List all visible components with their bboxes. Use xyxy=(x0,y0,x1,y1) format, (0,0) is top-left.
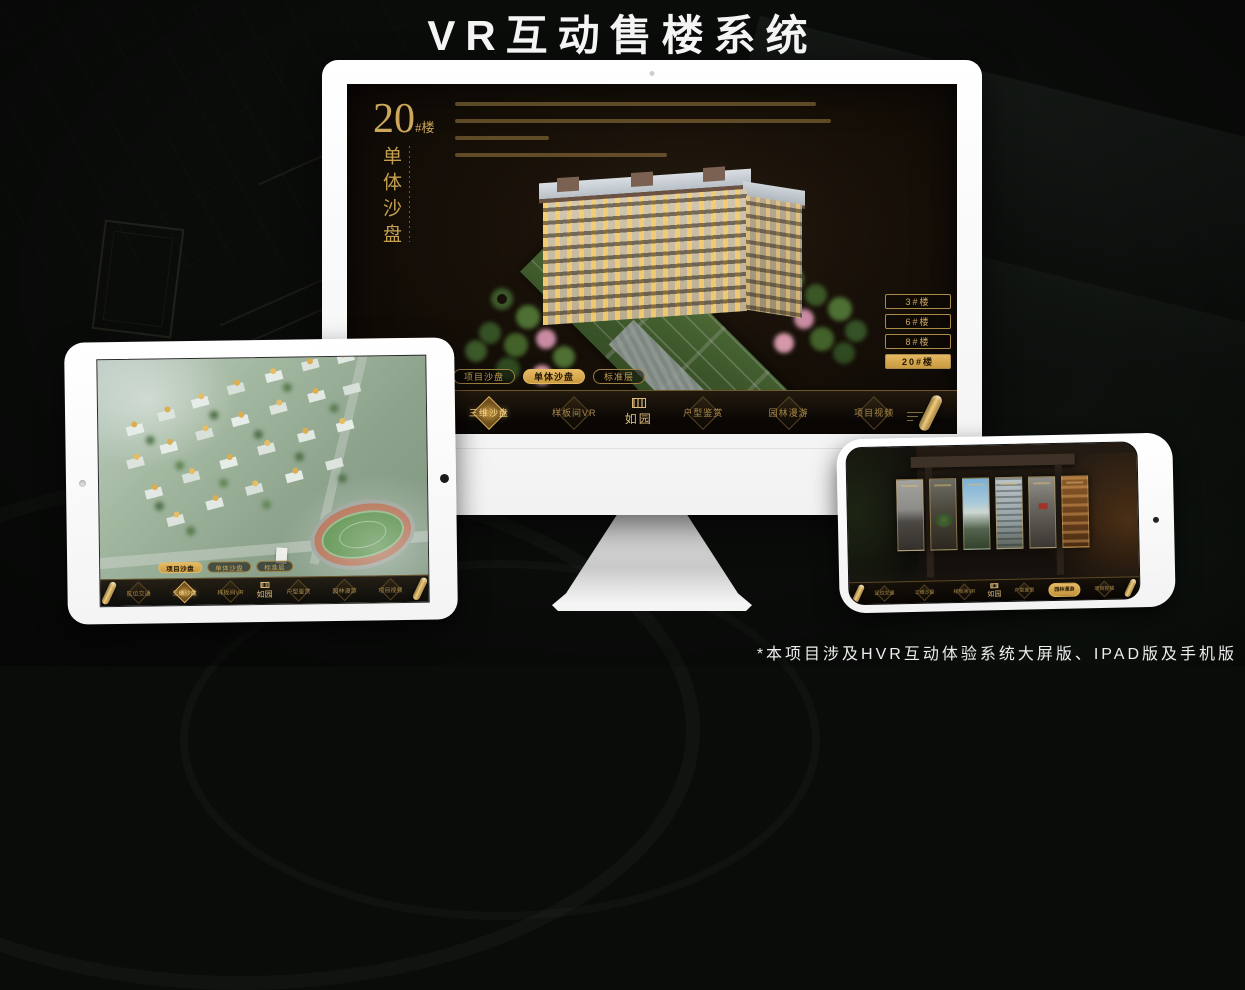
gallery-panel[interactable] xyxy=(1028,476,1057,549)
nav-item-garden-tour[interactable]: 园林漫游 xyxy=(1047,581,1081,598)
seal-icon xyxy=(632,398,646,408)
building-side-facade xyxy=(746,196,802,319)
nav-item-showroom-vr[interactable]: 样板间VR xyxy=(539,396,609,430)
scroll-handle-icon[interactable] xyxy=(1127,578,1133,597)
nav-item-location[interactable]: 区位交通 xyxy=(118,581,158,604)
tablet-device: 项目沙盘 单体沙盘 标准层 区位交通 三维沙盘 样板间VR 如园 户型鉴赏 园林… xyxy=(64,337,458,624)
gallery-panel[interactable] xyxy=(995,477,1024,550)
roof-dormer xyxy=(557,177,579,193)
phone-screen: 区位交通 三维沙盘 样板间VR 如园 户型鉴赏 园林漫游 项目视频 xyxy=(845,441,1140,605)
floor-button-8[interactable]: 8#楼 xyxy=(885,334,951,349)
description-line xyxy=(455,119,831,123)
tab-project-sandtable[interactable]: 项目沙盘 xyxy=(158,562,202,574)
tablet-nav-bar: 区位交通 三维沙盘 样板间VR 如园 户型鉴赏 园林漫游 项目视频 xyxy=(100,575,428,607)
nav-item-video[interactable]: 项目视频 xyxy=(1087,580,1121,597)
phone-camera-icon xyxy=(1153,517,1159,523)
nav-item-garden-tour[interactable]: 园林漫游 xyxy=(754,396,824,430)
footnote-text: *本项目涉及HVR互动体验系统大屏版、IPAD版及手机版 xyxy=(757,640,1237,664)
scene-gallery xyxy=(896,475,1089,551)
nav-item-sandtable[interactable]: 三维沙盘 xyxy=(164,581,204,604)
building-front-facade xyxy=(543,189,747,325)
phone-device: 区位交通 三维沙盘 样板间VR 如园 户型鉴赏 园林漫游 项目视频 xyxy=(836,433,1176,614)
brand-logo: 如园 xyxy=(625,398,653,427)
nav-item-sandtable[interactable]: 三维沙盘 xyxy=(454,396,524,430)
nav-item-showroom-vr[interactable]: 样板间VR xyxy=(210,580,250,603)
brand-logo-text: 如园 xyxy=(625,410,653,427)
nav-item-video[interactable]: 项目视频 xyxy=(839,396,909,430)
description-line xyxy=(455,136,549,140)
nav-item-showroom-vr[interactable]: 样板间VR xyxy=(947,583,981,600)
tablet-camera-icon xyxy=(79,480,86,487)
phone-nav-bar: 区位交通 三维沙盘 样板间VR 如园 户型鉴赏 园林漫游 项目视频 xyxy=(849,576,1139,604)
scroll-bar xyxy=(412,576,429,601)
description-paragraph xyxy=(455,102,847,170)
nav-item-floorplans[interactable]: 户型鉴赏 xyxy=(1007,582,1041,599)
floor-button-20[interactable]: 20#楼 xyxy=(885,354,951,369)
headline-vertical-text: 单体沙盘 xyxy=(377,146,404,250)
scroll-handle-icon[interactable] xyxy=(416,577,423,601)
floor-button-group: 3#楼 6#楼 8#楼 20#楼 xyxy=(885,294,951,369)
seal-icon xyxy=(260,582,269,588)
tab-single-sandtable[interactable]: 单体沙盘 xyxy=(523,369,585,384)
floor-button-6[interactable]: 6#楼 xyxy=(885,314,951,329)
tablet-screen: 项目沙盘 单体沙盘 标准层 区位交通 三维沙盘 样板间VR 如园 户型鉴赏 园林… xyxy=(96,355,429,608)
tab-single-sandtable[interactable]: 单体沙盘 xyxy=(207,561,251,573)
headline-rule xyxy=(409,146,410,242)
subtab-group: 项目沙盘 单体沙盘 标准层 xyxy=(453,369,645,384)
building-number: 20 xyxy=(373,96,415,142)
brand-logo: 如园 xyxy=(987,583,1001,599)
tab-standard-floor[interactable]: 标准层 xyxy=(593,369,645,384)
gallery-panel[interactable] xyxy=(929,478,958,551)
building-model xyxy=(543,170,809,326)
gallery-panel[interactable] xyxy=(962,477,991,550)
gallery-panel[interactable] xyxy=(896,479,925,552)
nav-item-garden-tour[interactable]: 园林漫游 xyxy=(324,579,364,602)
description-line xyxy=(455,153,667,157)
background-picture-frame xyxy=(92,220,185,339)
roof-dormer xyxy=(631,171,653,187)
tab-standard-floor[interactable]: 标准层 xyxy=(256,561,293,573)
scroll-bar xyxy=(852,584,865,604)
tab-project-sandtable[interactable]: 项目沙盘 xyxy=(453,369,515,384)
description-line xyxy=(455,102,816,106)
nav-item-video[interactable]: 项目视频 xyxy=(370,578,410,601)
building-number-suffix: #楼 xyxy=(415,120,435,135)
scroll-bar xyxy=(1124,578,1137,598)
seal-icon xyxy=(990,583,998,588)
page-title: VR互动售楼系统 xyxy=(0,2,1245,63)
brand-logo-text: 如园 xyxy=(987,589,1001,599)
scroll-handle-icon[interactable] xyxy=(925,394,936,432)
nav-item-location[interactable]: 区位交通 xyxy=(867,585,901,602)
nav-item-floorplans[interactable]: 户型鉴赏 xyxy=(668,396,738,430)
brand-logo-text: 如园 xyxy=(257,589,273,600)
nav-item-sandtable[interactable]: 三维沙盘 xyxy=(907,584,941,601)
tree-cluster xyxy=(497,294,507,304)
gallery-panel[interactable] xyxy=(1061,475,1090,548)
webcam-icon xyxy=(650,71,655,76)
floor-button-3[interactable]: 3#楼 xyxy=(885,294,951,309)
nav-item-floorplans[interactable]: 户型鉴赏 xyxy=(278,579,318,602)
tablet-subtab-group: 项目沙盘 单体沙盘 标准层 xyxy=(158,561,293,574)
tablet-home-button[interactable] xyxy=(440,474,449,483)
scroll-handle-icon[interactable] xyxy=(105,581,112,605)
scroll-handle-icon[interactable] xyxy=(855,584,861,603)
background-diagonal-line xyxy=(220,276,330,327)
brand-logo: 如园 xyxy=(256,582,272,600)
scroll-bar xyxy=(101,581,118,606)
